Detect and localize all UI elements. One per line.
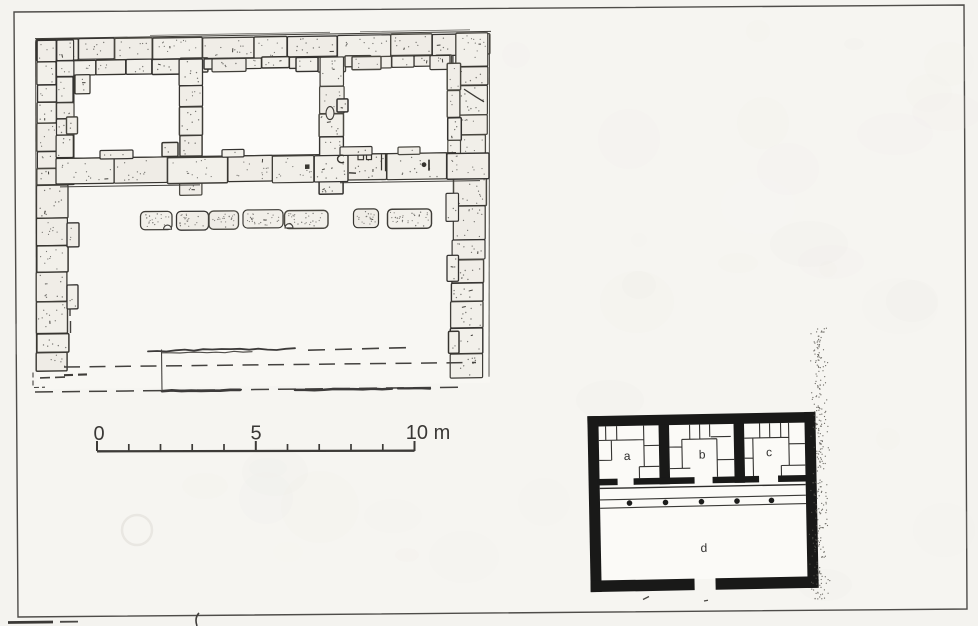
svg-text:a: a: [624, 449, 631, 463]
svg-text:10 m: 10 m: [406, 422, 450, 444]
svg-text:c: c: [766, 445, 772, 459]
svg-text:b: b: [699, 447, 706, 461]
svg-text:0: 0: [93, 423, 104, 445]
svg-text:5: 5: [250, 423, 261, 445]
svg-text:d: d: [700, 541, 707, 555]
